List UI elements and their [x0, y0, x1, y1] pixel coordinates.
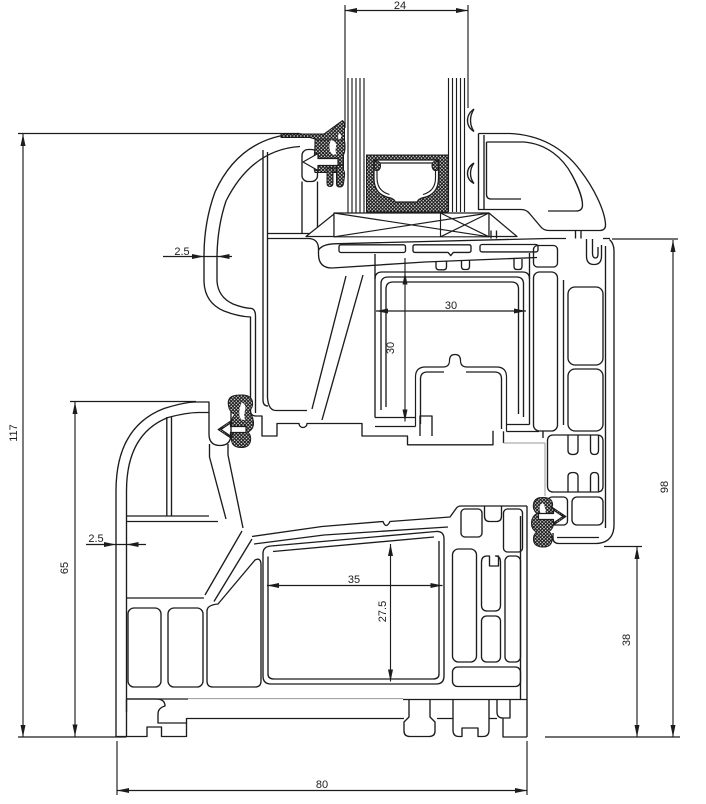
svg-text:117: 117: [8, 424, 20, 442]
svg-text:98: 98: [659, 481, 671, 493]
svg-text:65: 65: [59, 562, 71, 574]
svg-text:2.5: 2.5: [174, 246, 189, 258]
svg-text:30: 30: [385, 342, 397, 354]
svg-text:35: 35: [348, 574, 360, 586]
svg-text:80: 80: [316, 779, 328, 791]
svg-text:30: 30: [445, 300, 457, 312]
svg-text:38: 38: [621, 634, 633, 646]
svg-text:2.5: 2.5: [88, 533, 103, 545]
svg-text:24: 24: [394, 0, 406, 12]
svg-text:27.5: 27.5: [377, 601, 389, 622]
